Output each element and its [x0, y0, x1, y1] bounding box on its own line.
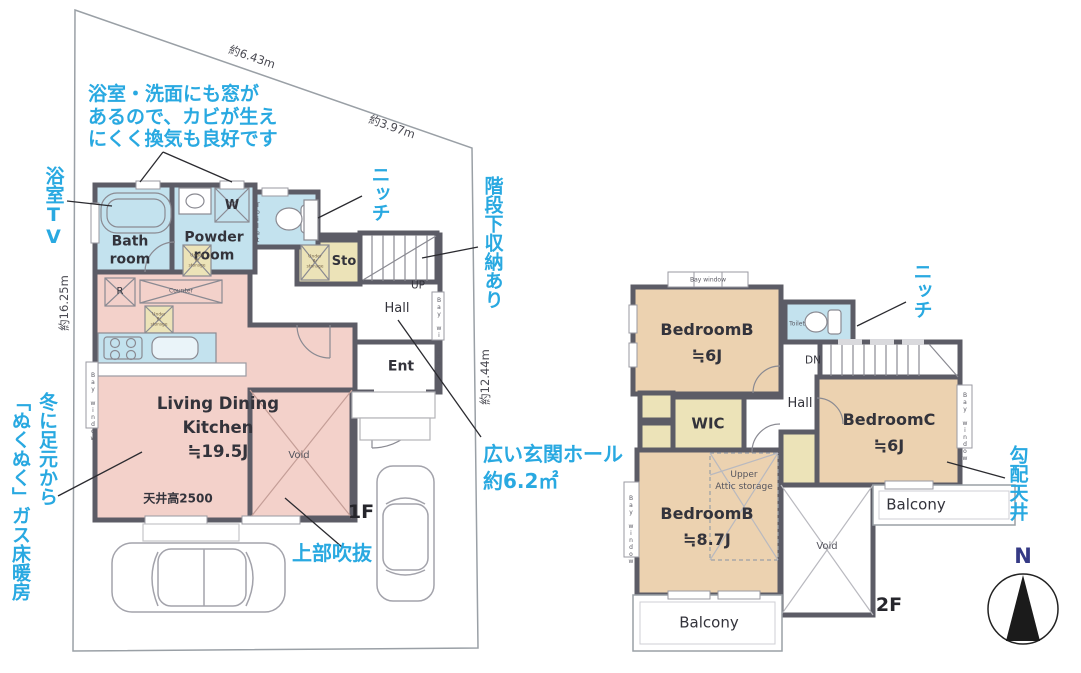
label-dn: DN [805, 354, 821, 367]
label-bay-window-hall: Bay window [435, 297, 443, 367]
label-void-1f: Void [288, 450, 309, 463]
label-floor-1f: 1F [348, 501, 374, 525]
counter-ledge [98, 363, 246, 376]
label-bedroom-b87: BedroomB ≒8.7J [660, 501, 753, 553]
niche-box [304, 200, 318, 240]
label-counter: Counter [169, 287, 193, 295]
label-toilet-2f: Toilet [789, 320, 805, 328]
annotation-bath-tv: 浴室TV [42, 166, 65, 248]
label-balcony-right: Balcony [886, 496, 945, 515]
f2-toilet-tank [828, 310, 841, 334]
label-bay-window-b6: Bay window [690, 276, 726, 284]
car-horizontal [112, 543, 285, 612]
annotation-niche-1f: ニッチ [368, 165, 391, 222]
porch-step-2 [360, 418, 430, 440]
compass-north-label: N [1014, 543, 1032, 569]
label-fridge: R [117, 286, 124, 299]
label-floor-2f: 2F [876, 594, 902, 618]
label-balcony-bottom: Balcony [679, 614, 738, 633]
driveway-mark [143, 524, 239, 541]
porch-step-1 [352, 392, 435, 418]
label-bedroom-c: BedroomC ≒6J [843, 407, 936, 459]
annotation-entrance-hall: 広い玄関ホール 約6.2㎡ [483, 441, 623, 495]
dim-left: 約16.25m [57, 275, 71, 331]
label-bath-room: Bath room [110, 234, 151, 269]
annotation-void-above: 上部吹抜 [292, 542, 372, 565]
dim-right: 約12.44m [478, 349, 492, 405]
label-bay-window-b87: Bay window [627, 495, 635, 565]
annotation-under-stairs: 階段下収納あり [481, 176, 504, 309]
f2-stairs [820, 342, 960, 378]
label-void-2f: Void [816, 541, 837, 554]
kitchen-sink [152, 337, 198, 359]
label-bay-window-c: Bay window [961, 392, 969, 462]
label-bedroom-b6: BedroomB ≒6J [660, 317, 753, 369]
f2-toilet-bowl [805, 312, 827, 332]
f2-closet-1 [640, 393, 673, 420]
label-washer: W [225, 198, 239, 214]
floorplan-page: 約6.43m 約3.97m 約16.25m 約12.44m Bath room … [0, 0, 1081, 673]
toilet-bowl [276, 208, 302, 230]
label-bay-window-ldk: Bay window [89, 372, 97, 442]
label-under-floor-1: Under flr storage [150, 313, 167, 328]
powder-sink [179, 188, 211, 214]
label-hall-1f: Hall [385, 301, 410, 317]
label-ceiling-height: 天井高2500 [143, 492, 212, 507]
f2-closet-2 [640, 423, 673, 450]
label-attic-storage: Upper Attic storage [715, 469, 773, 493]
compass [988, 574, 1058, 644]
label-under-floor-2: Under flr storage [188, 254, 205, 269]
label-toilet-1f: Toilet [254, 202, 262, 244]
label-ent: Ent [388, 358, 414, 376]
label-wic: WIC [691, 415, 724, 434]
annotation-bath-window: 浴室・洗面にも窓が あるので、カビが生え にくく換気も良好です [88, 83, 278, 151]
label-hall-2f: Hall [788, 396, 813, 412]
label-ldk: Living Dining Kitchen ≒19.5J [157, 392, 279, 464]
annotation-niche-2f: ニッチ [910, 262, 933, 319]
car-vertical [377, 466, 434, 601]
label-up: UP [411, 279, 425, 292]
label-sto: Sto [332, 254, 357, 270]
annotation-sloped-ceiling: 勾配天井 [1006, 445, 1029, 521]
label-under-floor-3: Under flr storage [306, 255, 323, 270]
annotation-floor-heating: 冬に足元から 「ぬくぬく」ガス床暖房 [6, 392, 60, 607]
